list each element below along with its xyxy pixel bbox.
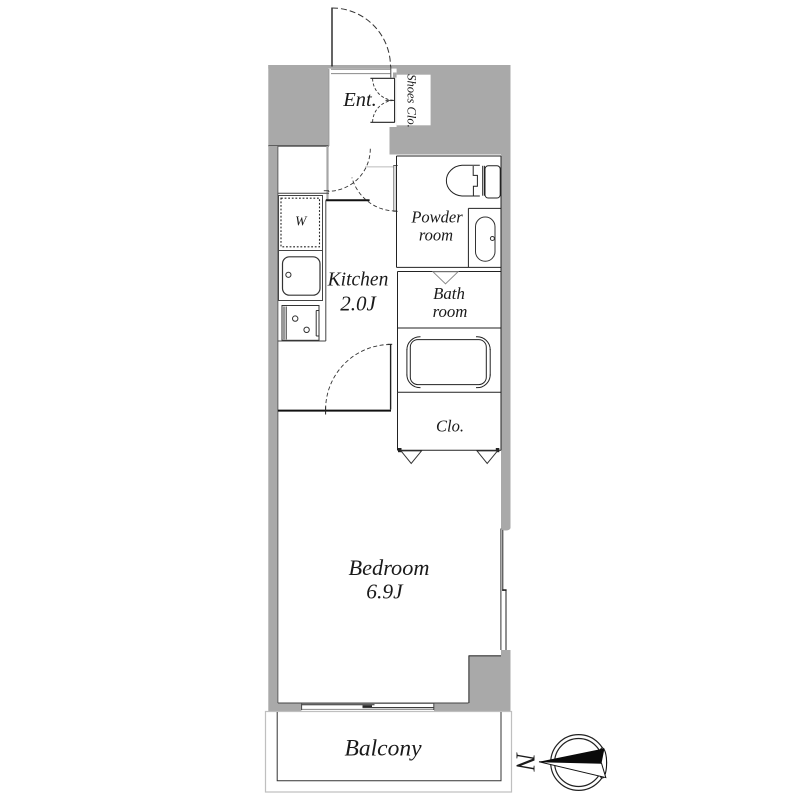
- svg-text:Ent.: Ent.: [342, 89, 377, 111]
- svg-text:Shoes Clo.: Shoes Clo.: [405, 74, 419, 127]
- svg-text:2.0J: 2.0J: [340, 292, 377, 316]
- svg-text:room: room: [419, 225, 453, 244]
- svg-text:room: room: [433, 302, 468, 321]
- svg-text:Powder: Powder: [410, 207, 463, 226]
- svg-text:Kitchen: Kitchen: [327, 270, 389, 291]
- svg-text:W: W: [295, 214, 308, 229]
- svg-text:Bedroom: Bedroom: [349, 555, 430, 580]
- svg-text:N: N: [511, 751, 541, 772]
- svg-text:Bath: Bath: [433, 284, 465, 303]
- svg-text:Clo.: Clo.: [436, 416, 464, 435]
- svg-text:6.9J: 6.9J: [366, 580, 404, 604]
- svg-text:Balcony: Balcony: [345, 735, 423, 761]
